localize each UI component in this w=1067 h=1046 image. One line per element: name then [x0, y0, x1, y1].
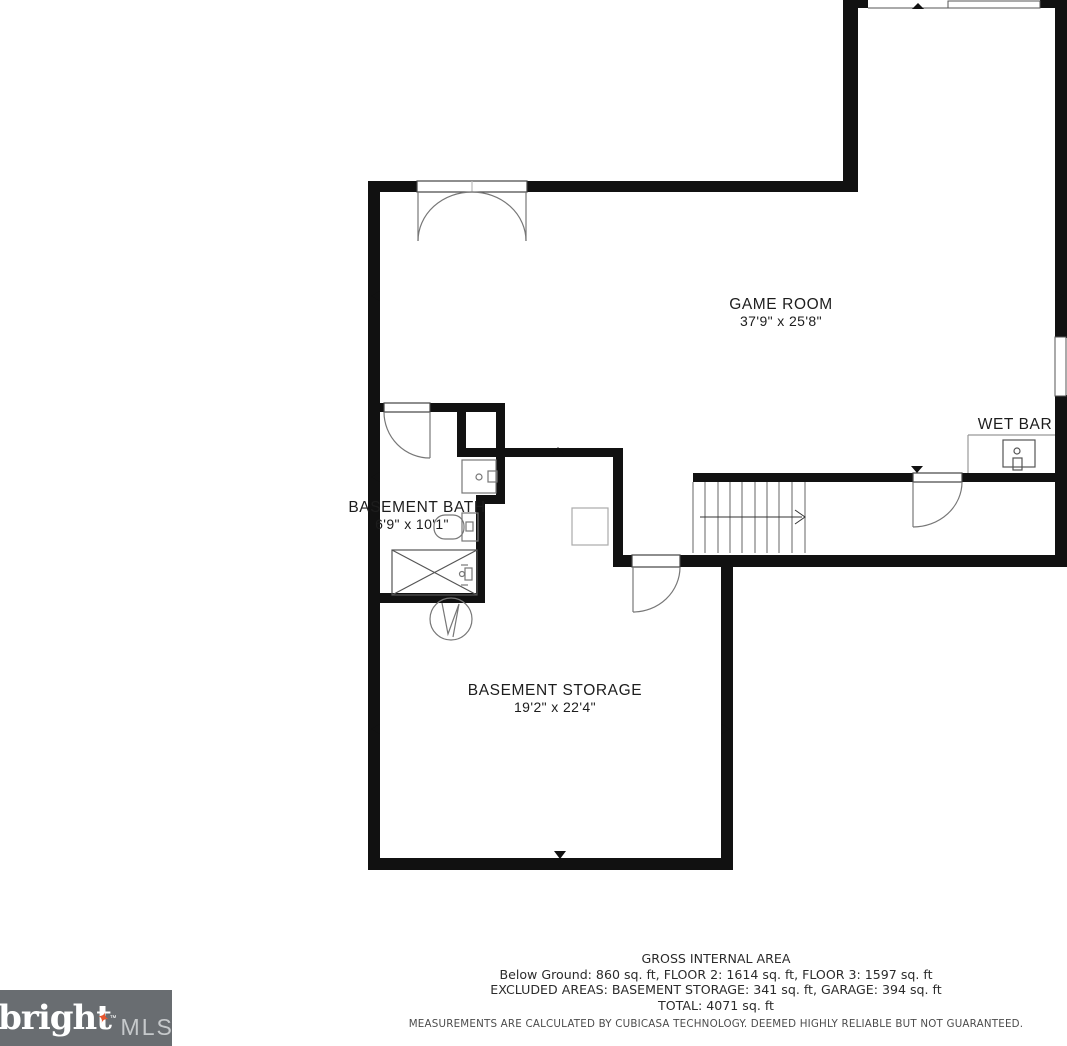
marker-top-window [912, 3, 924, 9]
column [572, 508, 608, 545]
stairs-direction-arrow [700, 510, 805, 524]
marker-stairhall-door [911, 466, 923, 473]
shower-valve [460, 565, 473, 585]
game-room-label: GAME ROOM [729, 296, 833, 313]
area-summary-line2: EXCLUDED AREAS: BASEMENT STORAGE: 341 sq… [386, 982, 1046, 998]
room-labels: GAME ROOM 37'9" x 25'8" WET BAR BASEMENT… [348, 296, 1052, 715]
storage-door [632, 555, 680, 612]
wet-bar-counter [968, 435, 1055, 473]
wet-bar-label: WET BAR [978, 416, 1053, 433]
basement-storage-label: BASEMENT STORAGE [468, 682, 642, 699]
marker-storage-bottom [554, 851, 566, 859]
bath-sink [462, 460, 497, 493]
area-summary-title: GROSS INTERNAL AREA [386, 951, 1046, 967]
shower [392, 550, 477, 595]
walls [368, 0, 1067, 870]
right-wall-window [1055, 337, 1066, 396]
top-window [948, 1, 1040, 8]
opening-markers [371, 3, 1064, 859]
sump-pump [430, 598, 472, 640]
measurement-disclaimer: MEASUREMENTS ARE CALCULATED BY CUBICASA … [386, 1017, 1046, 1033]
area-summary: GROSS INTERNAL AREA Below Ground: 860 sq… [386, 951, 1046, 1033]
area-summary-line1: Below Ground: 860 sq. ft, FLOOR 2: 1614 … [386, 967, 1046, 983]
game-room-dims: 37'9" x 25'8" [740, 313, 822, 329]
bath-door [384, 403, 430, 458]
hall-door [913, 473, 962, 527]
area-summary-total: TOTAL: 4071 sq. ft [386, 998, 1046, 1014]
logo-mls-text: MLS [121, 1016, 174, 1039]
basement-bath-label: BASEMENT BATH [348, 499, 485, 516]
floor-plan-page: GAME ROOM 37'9" x 25'8" WET BAR BASEMENT… [0, 0, 1067, 1046]
basement-storage-dims: 19'2" x 22'4" [514, 699, 596, 715]
staircase [693, 482, 805, 553]
basement-bath-dims: 6'9" x 10'1" [375, 516, 449, 532]
bright-mls-logo: bright✦™MLS [0, 990, 172, 1046]
logo-brand-text: bright [0, 1001, 111, 1035]
basement-floor-plan: GAME ROOM 37'9" x 25'8" WET BAR BASEMENT… [0, 0, 1067, 1046]
double-door [417, 181, 527, 241]
windows [868, 1, 1066, 396]
doors [384, 181, 962, 612]
